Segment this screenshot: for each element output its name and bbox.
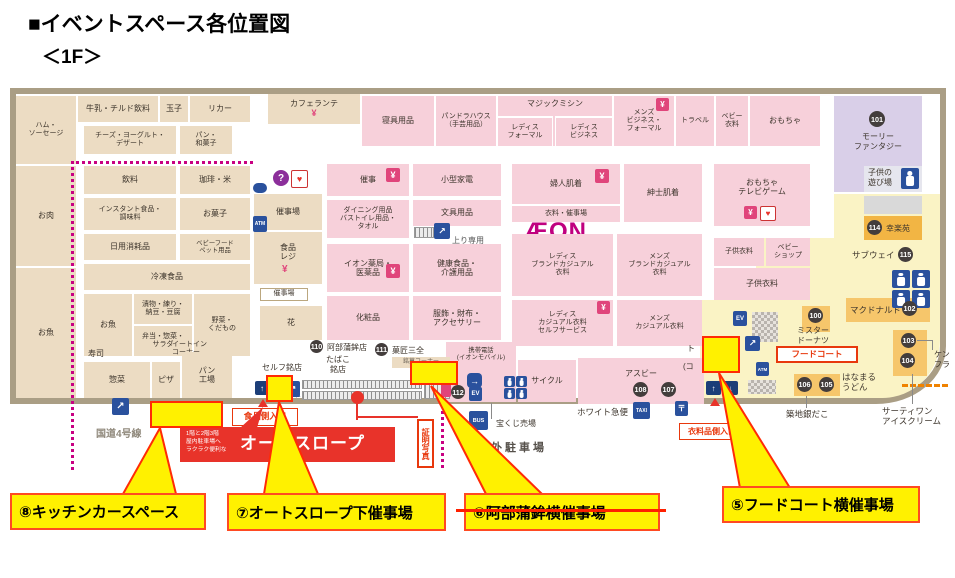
moving-walkway-1 (302, 380, 422, 389)
area-health-food: 健康食品・ 介護用品 (413, 244, 501, 292)
bus-stop-icon: BUS (469, 411, 488, 430)
abekama-label: 阿部蒲鉾店 (327, 343, 367, 353)
escalator-grid-2 (748, 380, 776, 394)
area-baby-shop: ベビー ショップ (766, 238, 810, 266)
callout-label-5: ⑤フードコート横催事場 (722, 486, 920, 523)
area-baby-clothes: ベビー 衣料 (716, 96, 748, 146)
hanamaru-label: はなまる うどん (842, 372, 876, 392)
area-ham-sausage: ハム・ ソーセージ (16, 96, 76, 164)
entrance-down-icon: ↓ (723, 381, 738, 395)
area-pickles: 漬物・練り・ 納豆・豆腐 (134, 294, 192, 324)
area-coffee-rice: 珈琲・米 (180, 166, 250, 194)
area-ladies-brand-casual: レディス ブランドカジュアル 衣料 (512, 234, 613, 296)
subway-label: サブウェイ (852, 250, 895, 260)
person-pictogram (504, 376, 515, 387)
area-deli: 惣菜 (84, 362, 150, 398)
restroom-icon-s2 (516, 376, 527, 387)
self-meiten-label: セルフ銘店 (262, 363, 302, 373)
tenant-number-107: 107 (661, 382, 676, 397)
event-space-6-marker (410, 361, 458, 385)
locker-label-fragment: (コ (683, 362, 694, 372)
kids-play-icon (901, 168, 919, 189)
area-pandora-house: パンドラハウス （手芸用品） (436, 96, 496, 146)
post-icon: 〒 (675, 401, 688, 416)
area-small-electronics: 小型家電 (413, 164, 501, 196)
event-space-8-marker (150, 401, 223, 428)
area-fish-large: お魚 (16, 268, 76, 398)
callout-6-strikethrough (456, 509, 666, 512)
caferante-label: カフェランテ (290, 99, 338, 108)
area-fish-small: お魚 (84, 294, 132, 356)
clothing-entrance-label: 衣料品側入口 (679, 423, 745, 440)
service-counter-icon (253, 183, 267, 193)
tenant-number-115: 115 (898, 247, 913, 262)
area-snacks: お菓子 (180, 198, 250, 230)
area-babyfood-pet: ベビーフード ペット用品 (180, 234, 250, 260)
restroom-icon-s1 (504, 376, 515, 387)
kfc-label-clipped: ケン フラ (934, 350, 955, 369)
area-kids-clothes-2: 子供衣料 (714, 268, 810, 300)
elevator-icon-2: EV (469, 387, 482, 401)
tsukiji-label: 築地銀だこ (786, 409, 829, 419)
escalator-icon: ↗ (745, 336, 760, 351)
entrance-up-icon: ↑ (706, 381, 721, 395)
atm-icon: ATM (253, 216, 267, 232)
person-pictogram (516, 376, 527, 387)
area-caferante: カフェランテ¥ (268, 94, 360, 124)
yen-icon: ¥ (386, 168, 400, 182)
callout-label-7: ⑦オートスロープ下催事場 (227, 493, 446, 531)
photo-id-text: 証明写真 (421, 428, 430, 460)
page-title: ■イベントスペース各位置図 (28, 12, 290, 37)
tenant-number-106: 106 (797, 377, 812, 392)
callout-label-8: ⑧キッチンカースペース (10, 493, 206, 530)
sushi-label: 寿司 (88, 349, 104, 359)
tenant-number-110: 110 (310, 340, 323, 353)
area-shinshi-hadagi: 紳士肌着 (624, 164, 702, 222)
tenant-number-111: 111 (375, 343, 388, 356)
lottery-connector (491, 403, 492, 419)
foodcourt-label: フードコート (776, 346, 858, 363)
area-flower: 花 (260, 306, 322, 340)
tabaco-label: たばこ 銘店 (326, 355, 350, 374)
route4-label: 国道4号線 (96, 429, 142, 441)
escalator-strip (414, 227, 434, 238)
elevator-icon: EV (733, 311, 747, 326)
floor-label: ＜1F＞ (42, 47, 102, 70)
area-cosmetics: 化粧品 (327, 296, 409, 340)
food-section-boundary-v (71, 161, 74, 470)
photo-id-booth-label: 証明写真 (417, 419, 434, 468)
yen-icon: ¥ (386, 264, 400, 278)
person-pictogram (892, 270, 910, 288)
area-event-hall-2: 催事場 (260, 288, 308, 301)
kfc-connector (917, 340, 933, 341)
person-pictogram (516, 388, 527, 399)
molly-fantasy-label: モーリー ファンタジー (836, 132, 920, 151)
kfc-connector-2 (932, 340, 933, 350)
yen-icon: ¥ (656, 98, 669, 111)
tenant-number-114: 114 (867, 220, 882, 235)
person-pictogram (504, 388, 515, 399)
area-stationery: 文具用品 (413, 200, 501, 226)
area-mens-casual: メンズ カジュアル衣料 (617, 300, 702, 346)
kourakuen-label: 幸楽苑 (886, 224, 910, 234)
lottery-label: 宝くじ売場 (496, 419, 536, 429)
escalator-icon-left: ↗ (112, 398, 129, 415)
tenant-number-101: 101 (869, 111, 885, 127)
area-kids-clothes-1: 子供衣料 (714, 238, 764, 266)
orange-dashed-line (902, 384, 948, 387)
area-daily-goods: 日用消耗品 (84, 234, 176, 260)
tenant-number-102: 102 (902, 301, 917, 316)
escalator-up-icon: ↗ (434, 223, 450, 239)
area-liquor: リカー (190, 96, 250, 122)
register-yen-icon: ¥ (282, 264, 288, 276)
area-pizza: ピザ (152, 362, 180, 398)
ice31-label: サーティワン アイスクリーム (882, 406, 941, 426)
mister-donut-label: ミスター ドーナツ (797, 326, 829, 345)
food-entrance-label: 食品側入口 (232, 408, 298, 426)
tenant-number-105: 105 (819, 377, 834, 392)
area-drinks: 飲料 (84, 166, 176, 194)
atm-icon-2: ATM (756, 362, 769, 376)
tenant-number-104: 104 (900, 353, 915, 368)
person-pictogram (901, 168, 919, 189)
tenant-number-108: 108 (633, 382, 648, 397)
information-icon: ? (273, 170, 289, 186)
taxi-icon: TAXI (633, 402, 650, 419)
yen-icon: ¥ (597, 301, 610, 314)
event-space-5-marker (702, 336, 740, 373)
area-instant-food: インスタント食品・ 調味料 (84, 198, 176, 230)
slope-connector-h (356, 416, 418, 418)
callout-label-6: ⑥阿部蒲鉾横催事場 (464, 493, 660, 531)
restroom-men-icon (892, 270, 910, 288)
autoslope-title: オートスロープ (240, 434, 365, 454)
ice31-connector (912, 374, 913, 404)
restroom-women-icon (912, 270, 930, 288)
aed-icon: ♥ (291, 170, 308, 188)
white-kyubin-label: ホワイト急便 (577, 407, 628, 417)
area-cheese-dessert: チーズ・ヨーグルト・ デザート (84, 126, 176, 154)
area-dining-goods: ダイニング用品 バストイレ用品・ タオル (327, 200, 409, 238)
photo-studio-icon: ♥ (760, 206, 776, 221)
turn-right-icon: → (467, 373, 482, 388)
restroom-icon-s4 (516, 388, 527, 399)
area-accessories: 服飾・財布・ アクセサリー (413, 296, 501, 340)
area-ladies-formal: レディス フォーマル (498, 116, 553, 146)
area-frozen: 冷凍食品 (84, 264, 250, 290)
area-bedding: 寝具用品 (362, 96, 434, 146)
yen-icon: ¥ (744, 206, 757, 219)
area-eggs: 玉子 (160, 96, 188, 122)
area-bakery: パン 工場 (182, 352, 232, 398)
outdoor-parking-label: 屋外駐車場 (477, 442, 547, 455)
sanzen-label: 菓匠三全 (392, 346, 424, 356)
tenant-number-103: 103 (901, 333, 916, 348)
floor-map-page: ■イベントスペース各位置図 ＜1F＞ ハム・ ソーセージ お肉 お魚 牛乳・チル… (0, 0, 955, 578)
autoslope-subtext: 1階と2階3階 屋内駐車場へ ラクラク便利な (186, 431, 227, 454)
backyard-band (864, 196, 922, 214)
kids-playground-label: 子供の 遊び場 (868, 168, 892, 187)
restroom-icon-s3 (504, 388, 515, 399)
toilet-label-fragment: ト (687, 344, 695, 354)
yen-icon: ¥ (595, 169, 609, 183)
tenant-number-112: 112 (451, 385, 465, 399)
area-bread-wagashi: パン・ 和菓子 (180, 126, 232, 154)
area-milk: 牛乳・チルド飲料 (78, 96, 158, 122)
area-travel: トラベル (676, 96, 714, 146)
area-toys-top: おもちゃ (750, 96, 820, 146)
food-section-boundary-v2 (441, 404, 444, 468)
area-meat: お肉 (16, 166, 76, 266)
entrance-arrow-marker (710, 398, 720, 406)
person-pictogram (912, 270, 930, 288)
area-ladies-business: レディス ビジネス (555, 116, 612, 146)
tenant-number-100: 100 (808, 308, 823, 323)
event-space-7-marker (266, 375, 293, 402)
photo-booth-icon (441, 384, 451, 397)
area-mens-brand-casual: メンズ ブランドカジュアル 衣料 (617, 234, 702, 296)
area-food-register: 食品 レジ (254, 232, 322, 284)
tsukiji-connector (806, 396, 807, 408)
yen-icon: ¥ (311, 108, 316, 118)
food-section-boundary-h (71, 161, 253, 164)
